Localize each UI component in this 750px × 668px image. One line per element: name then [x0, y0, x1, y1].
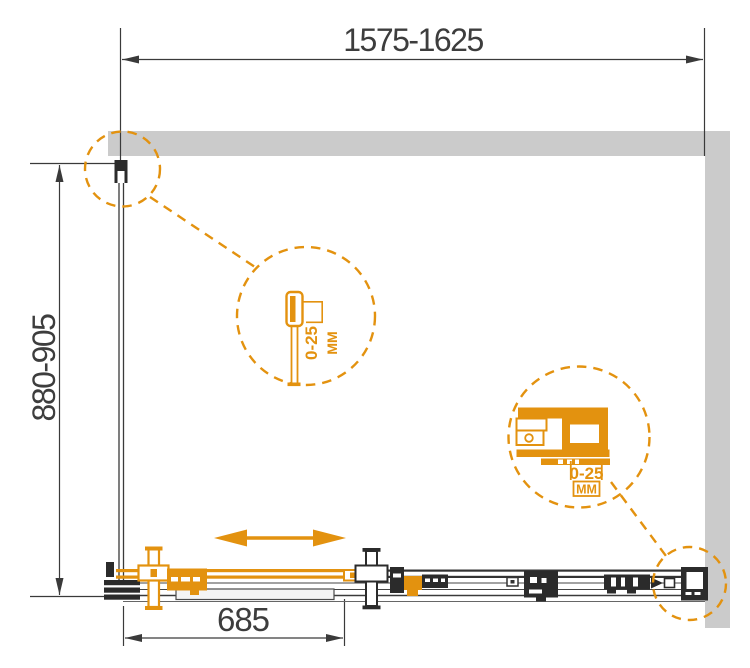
end-stop [651, 578, 675, 589]
dimension-door-width-label: 685 [217, 601, 269, 638]
wall-profile-unit-label: ММ [324, 331, 340, 354]
right-guide-hardware [604, 575, 650, 594]
shower-enclosure-technical-drawing: 1575-1625 880-905 685 [0, 0, 750, 668]
wall-profile-bottom [104, 562, 140, 600]
arrowhead-up-icon [56, 165, 64, 182]
top-wall [108, 131, 730, 156]
sliding-door-panel [176, 589, 334, 600]
slide-direction-arrow-icon [214, 530, 346, 547]
arrowhead-down-icon [56, 578, 64, 595]
arrowhead-right-icon [686, 56, 703, 64]
arrowhead-left-icon [125, 634, 142, 642]
dimension-depth: 880-905 [26, 164, 123, 597]
center-support-profile [344, 548, 388, 609]
arrowhead-right-icon [326, 634, 343, 642]
wall-profile-detail-drawing: 0-25 ММ [287, 292, 341, 386]
right-wall [705, 131, 730, 628]
fixing-bolt [507, 578, 518, 587]
dimension-depth-label: 880-905 [26, 314, 62, 422]
callout-leader-right [611, 482, 666, 556]
roller-carriage [524, 571, 558, 602]
corner-connector-adjustment-label: 0-25 [569, 464, 603, 483]
door-track-assembly [104, 547, 708, 611]
wall-profile-adjustment-label: 0-25 [302, 326, 321, 360]
arrowhead-left-icon [122, 56, 139, 64]
dimension-width-label: 1575-1625 [343, 22, 483, 58]
adjustable-wall-profile [139, 547, 169, 611]
corner-wall-bracket [681, 567, 708, 601]
corner-connector-detail-drawing: 0-25 ММ [517, 408, 611, 497]
callout-circle-wall-profile-detail [237, 247, 375, 385]
fixed-side-panel [115, 160, 128, 580]
callout-leader-left [150, 197, 258, 269]
callout-circles [85, 132, 726, 621]
corner-connector-unit-label: ММ [576, 483, 597, 497]
